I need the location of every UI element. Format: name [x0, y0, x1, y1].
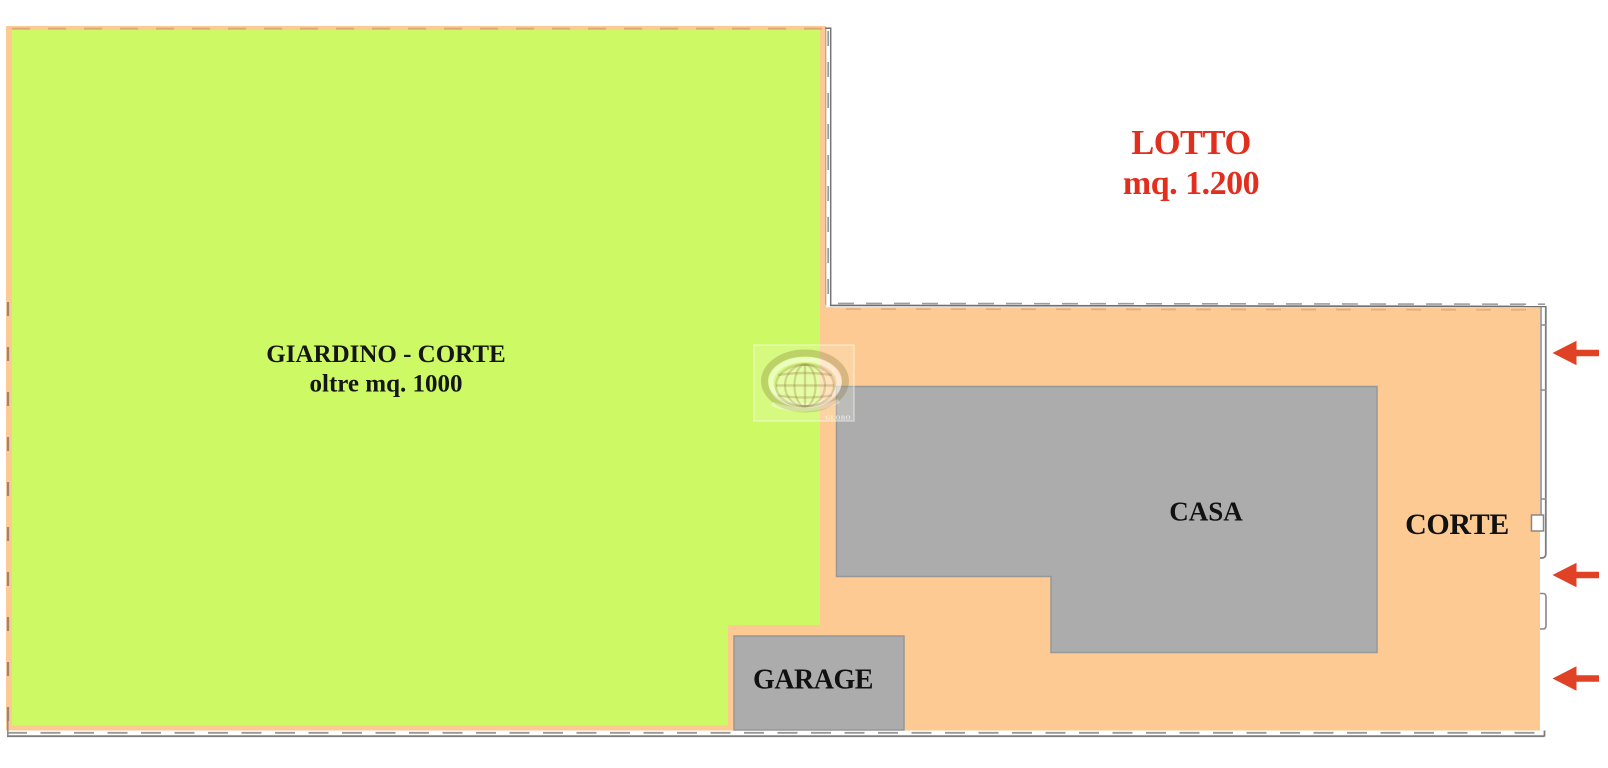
svg-text:mq. 1.200: mq. 1.200 [1123, 165, 1259, 202]
svg-text:GIARDINO - CORTE: GIARDINO - CORTE [266, 341, 505, 368]
svg-text:CORTE: CORTE [1405, 508, 1509, 541]
svg-text:GLOBO: GLOBO [825, 415, 851, 422]
svg-text:LOTTO: LOTTO [1131, 124, 1251, 162]
svg-text:GARAGE: GARAGE [753, 665, 873, 696]
svg-text:CASA: CASA [1169, 497, 1243, 527]
svg-text:oltre mq. 1000: oltre mq. 1000 [310, 371, 463, 398]
